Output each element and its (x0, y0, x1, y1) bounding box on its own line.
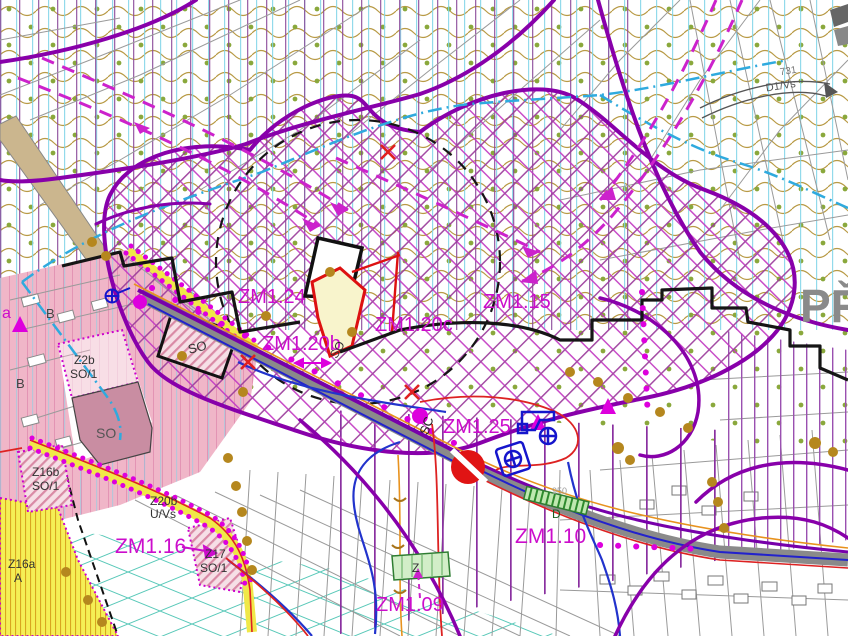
label-place: PŘ (800, 280, 848, 332)
label-zm115: ZM1.15 (483, 291, 551, 313)
label-zm109: ZM1.09 (376, 594, 444, 616)
label-z17-code: SO/1 (200, 561, 228, 575)
label-z16b-code: SO/1 (32, 479, 60, 493)
label-b-upper: B (46, 306, 55, 321)
label-so-area: SO (96, 425, 116, 441)
label-d-bar: D (552, 507, 561, 521)
label-zm120c: ZM1.20c (375, 314, 453, 336)
zoning-map-canvas: ZM1.24 ZM1.15 ZM1.20c ZM1.20b ZM1.25 ZM1… (0, 0, 848, 636)
label-z16a: Z16a (8, 557, 36, 571)
label-d-bar-num: 950 (552, 486, 567, 496)
zoning-map-svg: ZM1.24 ZM1.15 ZM1.20c ZM1.20b ZM1.25 ZM1… (0, 0, 848, 636)
label-zm124: ZM1.24 (238, 286, 306, 308)
label-z16a-code: A (14, 571, 22, 585)
label-z17: Z17 (205, 547, 226, 561)
label-a-edge: a (2, 305, 11, 322)
label-z2b-code: SO/1 (70, 367, 98, 381)
label-z-small: Z (412, 561, 419, 575)
label-zm110: ZM1.10 (515, 525, 586, 548)
label-zm125: ZM1.25 (443, 416, 511, 438)
label-b-lower: B (16, 376, 25, 391)
label-zm116: ZM1.16 (115, 535, 186, 558)
label-z2b: Z2b (74, 353, 95, 367)
label-z20b-code: U/Vs (150, 507, 176, 521)
label-z20b: Z20b (150, 494, 178, 508)
label-z16b: Z16b (32, 465, 60, 479)
